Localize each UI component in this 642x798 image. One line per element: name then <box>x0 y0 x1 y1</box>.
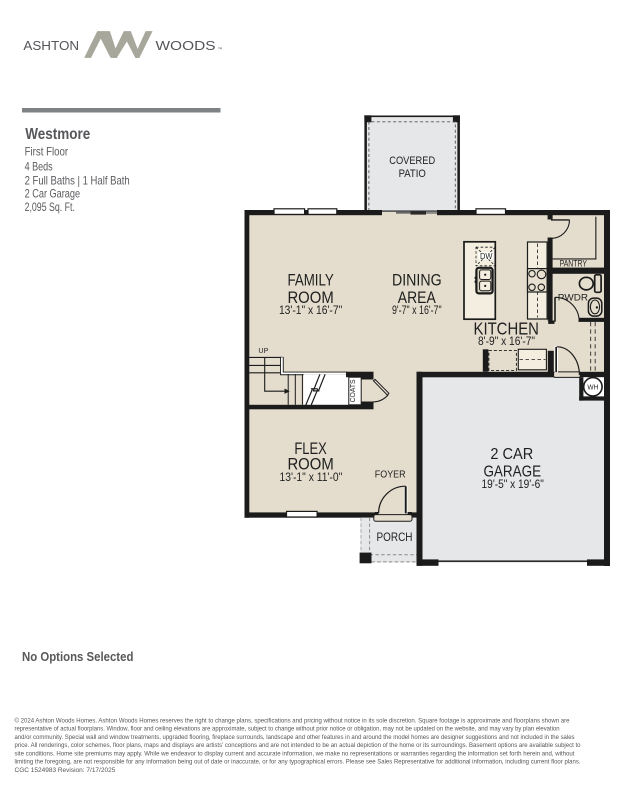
svg-text:ASHTON: ASHTON <box>23 38 79 53</box>
svg-text:13'-1" x 11'-0": 13'-1" x 11'-0" <box>280 472 343 484</box>
svg-text:™: ™ <box>218 47 223 52</box>
svg-text:2 Car Garage: 2 Car Garage <box>25 187 81 201</box>
svg-text:© 2024 Ashton Woods Homes. Ash: © 2024 Ashton Woods Homes. Ashton Woods … <box>15 717 570 725</box>
svg-text:Westmore: Westmore <box>25 126 90 143</box>
svg-text:No Options Selected: No Options Selected <box>22 649 133 664</box>
svg-text:PATIO: PATIO <box>399 168 426 180</box>
svg-text:PANTRY: PANTRY <box>560 258 587 268</box>
svg-text:ROOM: ROOM <box>287 455 333 474</box>
svg-text:PORCH: PORCH <box>377 530 413 544</box>
svg-text:DW: DW <box>480 252 493 261</box>
svg-text:2 CAR: 2 CAR <box>490 446 533 463</box>
svg-text:GARAGE: GARAGE <box>483 463 541 480</box>
svg-text:COVERED: COVERED <box>389 155 435 167</box>
svg-text:8'-9" x 16'-7": 8'-9" x 16'-7" <box>478 336 535 348</box>
svg-text:site conditions. Home site pre: site conditions. Home site premiums may … <box>15 750 575 757</box>
svg-text:4 Beds: 4 Beds <box>25 160 53 174</box>
svg-text:2 Full Baths | 1 Half Bath: 2 Full Baths | 1 Half Bath <box>25 174 130 188</box>
svg-text:13'-1" x 16'-7": 13'-1" x 16'-7" <box>279 305 342 317</box>
svg-text:2,095 Sq. Ft.: 2,095 Sq. Ft. <box>25 200 75 214</box>
svg-text:limiting the foregoing, are no: limiting the foregoing, are not responsi… <box>15 759 581 766</box>
svg-text:FOYER: FOYER <box>375 469 406 481</box>
svg-text:COATS: COATS <box>348 379 357 402</box>
svg-text:UP: UP <box>258 346 268 355</box>
svg-text:WOODS: WOODS <box>156 38 216 53</box>
svg-text:WH: WH <box>587 383 598 392</box>
svg-text:representative of actual floor: representative of actual floorplans. Win… <box>15 726 560 733</box>
svg-text:price. All renderings, color s: price. All renderings, color schemes, fl… <box>15 742 581 749</box>
svg-text:19'-5" x 19'-6": 19'-5" x 19'-6" <box>482 479 544 491</box>
svg-text:9'-7" x 16'-7": 9'-7" x 16'-7" <box>392 305 442 317</box>
svg-text:and/or community. Special wall: and/or community. Special wall and windo… <box>15 734 576 741</box>
svg-text:First Floor: First Floor <box>25 145 69 159</box>
svg-text:CGC 1524983 Revision: 7/17/202: CGC 1524983 Revision: 7/17/2025 <box>15 767 116 774</box>
